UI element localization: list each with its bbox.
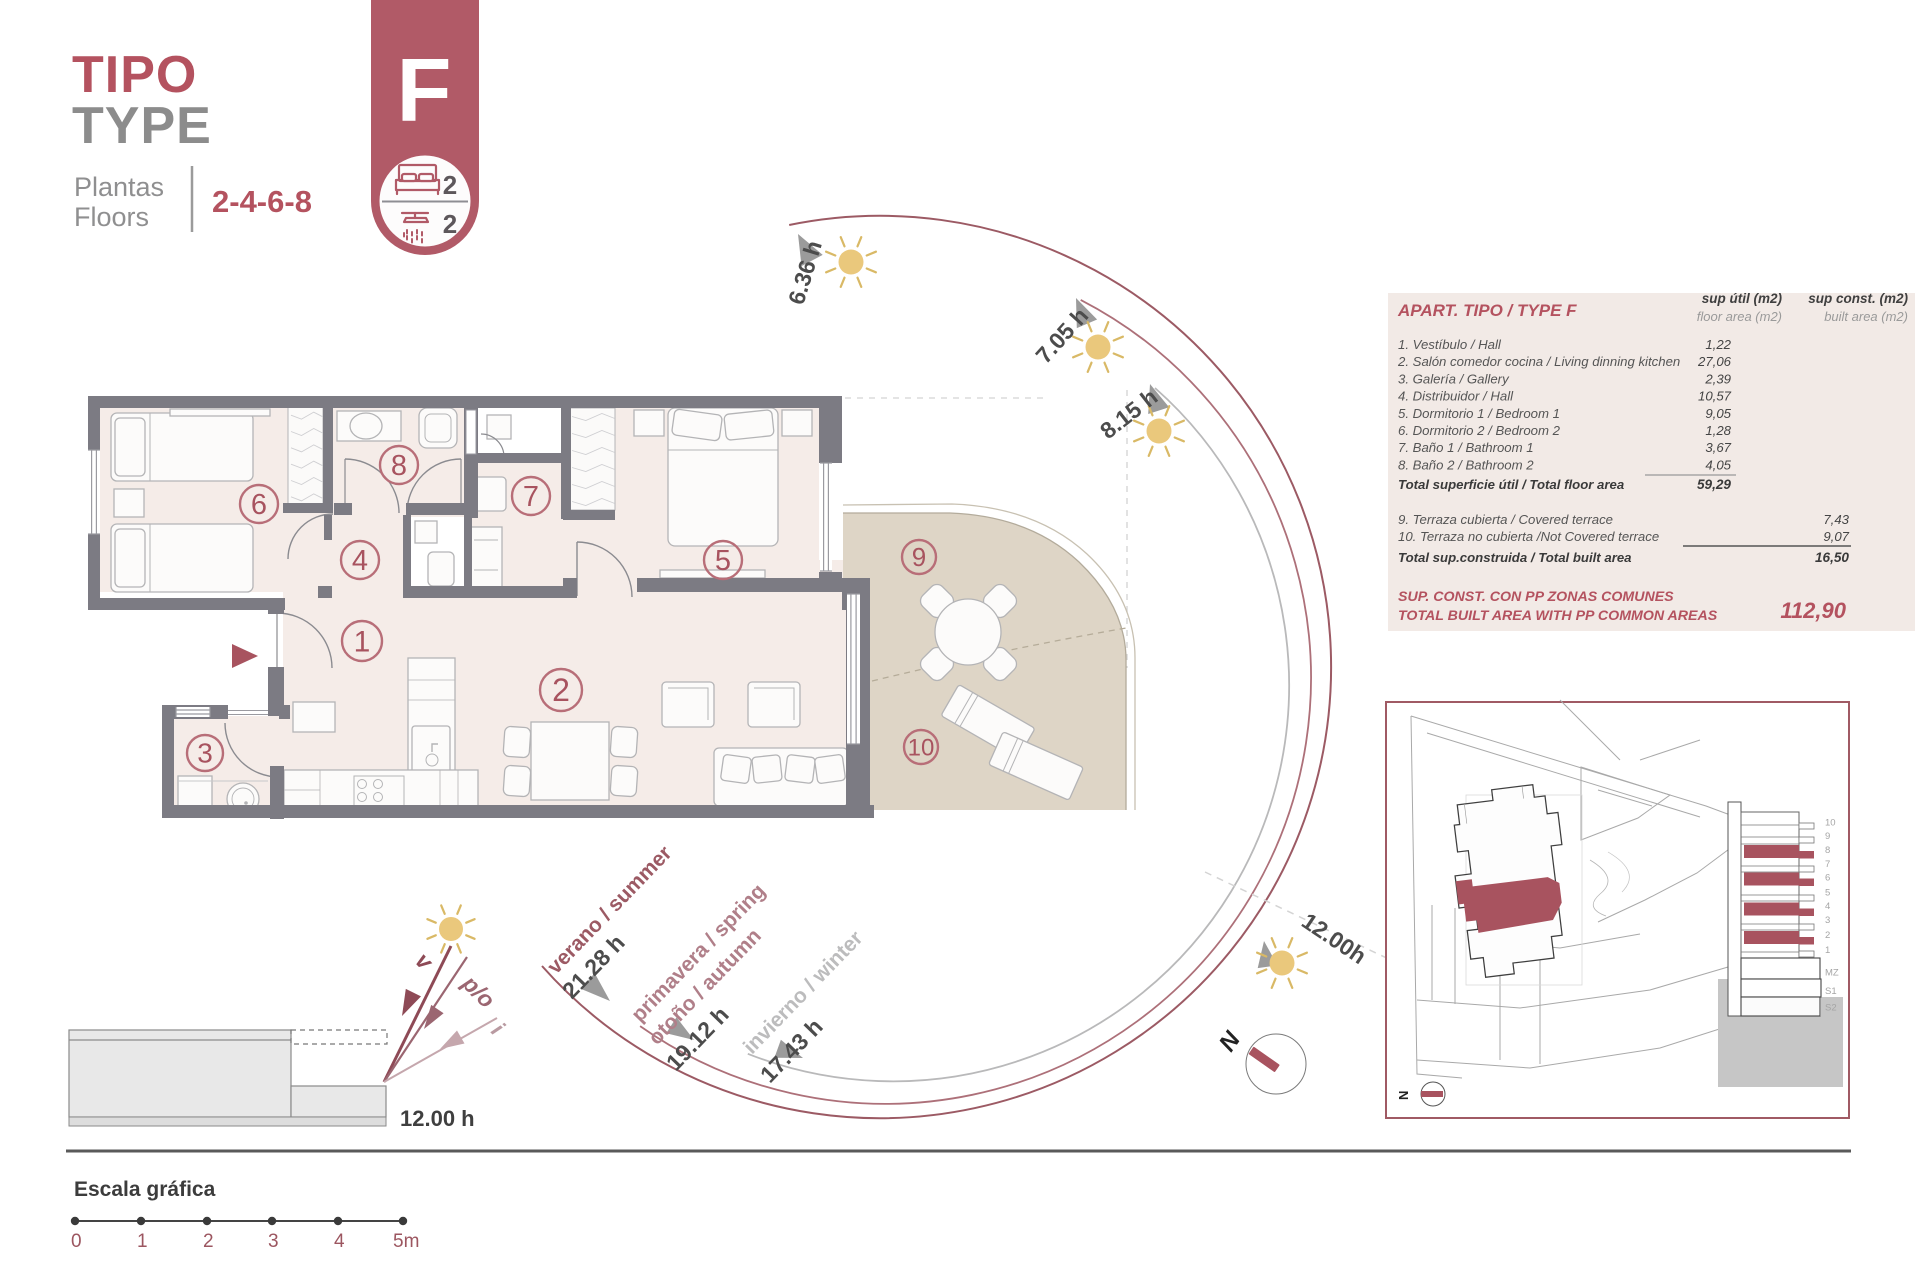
svg-text:built area (m2): built area (m2) — [1824, 309, 1908, 324]
svg-text:5m: 5m — [393, 1231, 419, 1252]
svg-text:9. Terraza cubierta / Covered: 9. Terraza cubierta / Covered terrace — [1398, 512, 1613, 527]
svg-text:4. Distribuidor / Hall: 4. Distribuidor / Hall — [1398, 389, 1514, 404]
svg-text:2,39: 2,39 — [1704, 371, 1731, 386]
svg-text:2: 2 — [203, 1231, 214, 1252]
svg-text:floor area (m2): floor area (m2) — [1697, 309, 1782, 324]
svg-text:Floors: Floors — [74, 202, 149, 232]
svg-text:6: 6 — [1825, 873, 1830, 884]
svg-text:2: 2 — [552, 672, 570, 708]
svg-text:3: 3 — [268, 1231, 279, 1252]
svg-text:9,07: 9,07 — [1823, 529, 1849, 544]
svg-text:2: 2 — [1825, 930, 1830, 941]
svg-text:5: 5 — [1825, 888, 1830, 899]
svg-text:112,90: 112,90 — [1780, 598, 1846, 623]
svg-text:3: 3 — [1825, 915, 1830, 926]
svg-text:4,05: 4,05 — [1705, 457, 1731, 472]
svg-text:N: N — [1396, 1091, 1411, 1100]
svg-text:2-4-6-8: 2-4-6-8 — [212, 184, 312, 219]
svg-text:1: 1 — [354, 625, 371, 658]
svg-text:7: 7 — [523, 481, 539, 513]
svg-text:Total superficie útil / Total: Total superficie útil / Total floor area — [1398, 477, 1624, 492]
svg-text:S1: S1 — [1825, 986, 1837, 997]
svg-text:S2: S2 — [1825, 1003, 1837, 1014]
svg-text:2: 2 — [443, 170, 457, 200]
svg-text:TIPO: TIPO — [72, 46, 197, 104]
svg-text:8: 8 — [1825, 845, 1830, 856]
svg-text:3: 3 — [197, 738, 213, 769]
svg-text:TYPE: TYPE — [72, 97, 212, 155]
svg-text:59,29: 59,29 — [1697, 477, 1731, 492]
svg-text:10: 10 — [908, 734, 935, 761]
svg-text:4: 4 — [1825, 901, 1830, 912]
svg-text:6. Dormitorio 2 / Bedroom 2: 6. Dormitorio 2 / Bedroom 2 — [1398, 423, 1561, 438]
svg-text:Plantas: Plantas — [74, 172, 164, 202]
svg-text:MZ: MZ — [1825, 968, 1839, 979]
svg-text:TOTAL BUILT AREA WITH PP COMMO: TOTAL BUILT AREA WITH PP COMMON AREAS — [1398, 608, 1718, 624]
svg-text:7,43: 7,43 — [1823, 512, 1849, 527]
svg-text:10: 10 — [1825, 818, 1836, 829]
svg-text:10,57: 10,57 — [1698, 389, 1732, 404]
svg-text:7. Baño 1 / Bathroom 1: 7. Baño 1 / Bathroom 1 — [1398, 440, 1534, 455]
svg-text:7: 7 — [1825, 859, 1830, 870]
svg-text:1: 1 — [1825, 945, 1830, 956]
svg-text:5. Dormitorio 1 / Bedroom 1: 5. Dormitorio 1 / Bedroom 1 — [1398, 406, 1560, 421]
svg-text:5: 5 — [715, 545, 731, 577]
svg-text:Escala gráfica: Escala gráfica — [74, 1178, 216, 1201]
svg-text:Total sup.construida / Total b: Total sup.construida / Total built area — [1398, 550, 1632, 565]
svg-text:8. Baño 2 / Bathroom 2: 8. Baño 2 / Bathroom 2 — [1398, 457, 1534, 472]
svg-text:9,05: 9,05 — [1705, 406, 1731, 421]
svg-text:12.00 h: 12.00 h — [400, 1106, 475, 1131]
svg-text:sup útil (m2): sup útil (m2) — [1702, 291, 1783, 306]
svg-text:8: 8 — [391, 450, 407, 482]
svg-text:3. Galería / Gallery: 3. Galería / Gallery — [1398, 371, 1510, 386]
svg-text:sup const. (m2): sup const. (m2) — [1808, 291, 1908, 306]
svg-text:1,22: 1,22 — [1705, 337, 1731, 352]
svg-text:3,67: 3,67 — [1705, 440, 1731, 455]
svg-text:6: 6 — [251, 489, 267, 521]
svg-text:1: 1 — [137, 1231, 148, 1252]
svg-text:16,50: 16,50 — [1815, 550, 1849, 565]
svg-text:F: F — [397, 41, 452, 141]
svg-text:0: 0 — [71, 1231, 82, 1252]
svg-text:1. Vestíbulo / Hall: 1. Vestíbulo / Hall — [1398, 337, 1502, 352]
svg-text:2. Salón comedor cocina / Livi: 2. Salón comedor cocina / Living dinning… — [1397, 354, 1680, 369]
svg-text:1,28: 1,28 — [1705, 423, 1731, 438]
svg-text:9: 9 — [1825, 831, 1830, 842]
svg-text:9: 9 — [912, 542, 926, 572]
svg-text:2: 2 — [443, 209, 457, 239]
svg-text:APART. TIPO / TYPE F: APART. TIPO / TYPE F — [1397, 301, 1577, 320]
svg-text:27,06: 27,06 — [1697, 354, 1732, 369]
svg-text:4: 4 — [352, 545, 368, 577]
svg-text:10. Terraza no cubierta /Not C: 10. Terraza no cubierta /Not Covered ter… — [1398, 529, 1659, 544]
svg-text:SUP. CONST. CON PP ZONAS COMUN: SUP. CONST. CON PP ZONAS COMUNES — [1398, 589, 1674, 605]
svg-text:4: 4 — [334, 1231, 345, 1252]
